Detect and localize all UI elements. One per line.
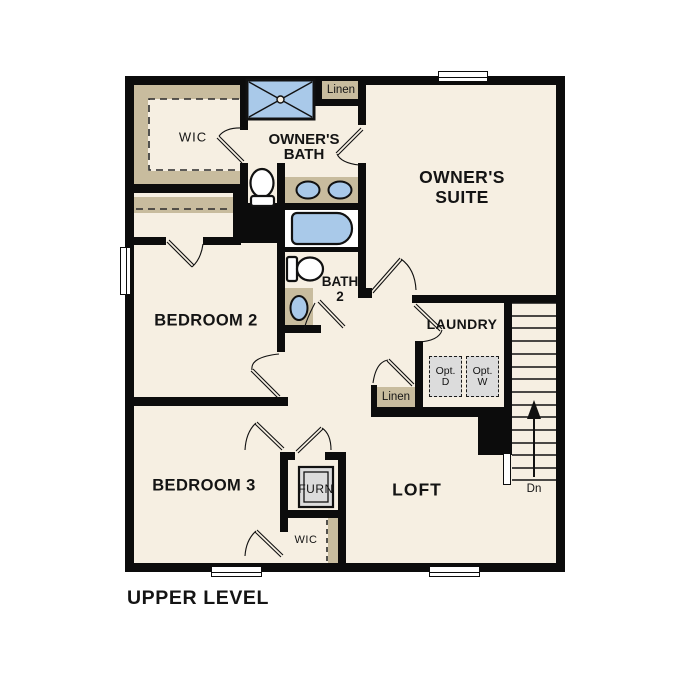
wall (358, 163, 366, 298)
wall (240, 80, 248, 130)
wall (478, 413, 512, 455)
owner-suite-label-line2: SUITE (419, 187, 505, 207)
wall (280, 510, 346, 518)
wall (358, 80, 366, 125)
wall (277, 203, 366, 210)
upper-level-floor-plan: Opt. D Opt. W WIC OWNER'S BATH Linen OWN… (0, 0, 687, 687)
stair-opening-frame (503, 453, 511, 485)
loft-label: LOFT (392, 480, 442, 501)
optional-dryer-label-line2: D (442, 377, 450, 388)
wall (504, 295, 512, 413)
bedroom3-window (211, 566, 262, 577)
bedroom3-label: BEDROOM 3 (152, 477, 256, 496)
linen-bath-label: Linen (327, 84, 355, 96)
bedroom2-label: BEDROOM 2 (154, 312, 258, 331)
loft-window (429, 566, 480, 577)
laundry-label: LAUNDRY (427, 316, 498, 332)
optional-washer-label-line1: Opt. (473, 366, 493, 377)
bath2-label-line1: BATH (322, 274, 359, 289)
stairs-down-label: Dn (527, 483, 542, 495)
wall (371, 385, 377, 409)
bedroom2-closet-shelf (134, 197, 234, 213)
linen-hall-label: Linen (382, 391, 410, 403)
furnace-label: FURN (298, 482, 333, 496)
wall (280, 452, 288, 518)
wall (277, 163, 285, 352)
wall (240, 203, 281, 243)
wall (412, 295, 565, 303)
wall (280, 518, 288, 532)
owner-bath-label-line1: OWNER'S (268, 132, 339, 147)
owner-suite-window (438, 71, 488, 82)
bath2-label-line2: 2 (322, 289, 359, 304)
wall (240, 163, 248, 203)
optional-washer-label-line2: W (478, 377, 488, 388)
wall (277, 247, 366, 252)
owner-bath-label-line2: BATH (268, 147, 339, 162)
optional-dryer-label-line1: Opt. (436, 366, 456, 377)
bath2-vanity-counter (285, 288, 313, 326)
wall (125, 237, 166, 245)
bedroom2-window (120, 247, 131, 295)
optional-dryer-box: Opt. D (429, 356, 462, 397)
wall (125, 397, 288, 406)
wall (338, 452, 346, 563)
owner-wic-label: WIC (179, 130, 207, 145)
bedroom3-wic-label: WIC (295, 534, 318, 546)
owner-bath-vanity-counter (285, 177, 359, 203)
owner-suite-label-line1: OWNER'S (419, 167, 505, 187)
wall (125, 184, 248, 193)
page-title: UPPER LEVEL (127, 587, 269, 610)
optional-washer-box: Opt. W (466, 356, 499, 397)
wall (277, 325, 321, 333)
wall (415, 341, 423, 407)
wall-door-jamb (364, 288, 372, 298)
